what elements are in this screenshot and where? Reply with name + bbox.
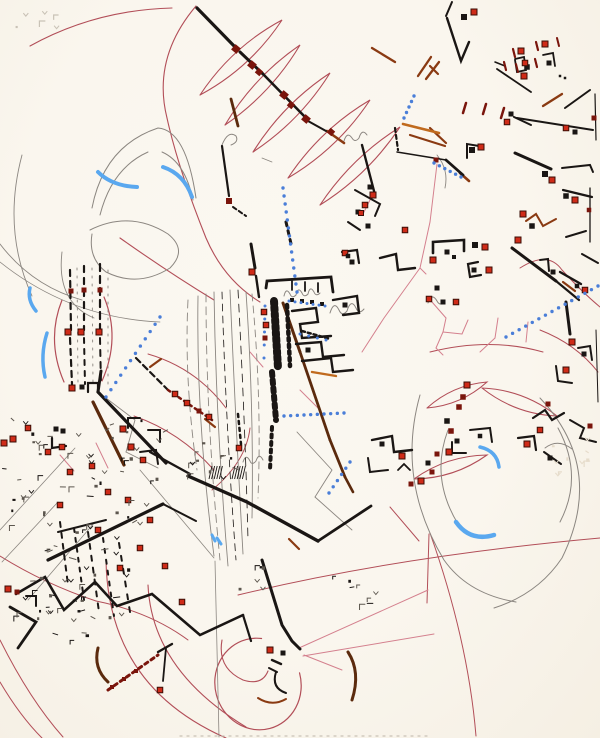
abstract-ink-drawing	[0, 0, 600, 738]
drawing-canvas	[0, 0, 600, 738]
artwork	[0, 0, 600, 738]
layer-gray-arcs	[0, 128, 580, 737]
layer-black-ink	[10, 2, 598, 693]
layer-blue-dots	[104, 94, 599, 494]
